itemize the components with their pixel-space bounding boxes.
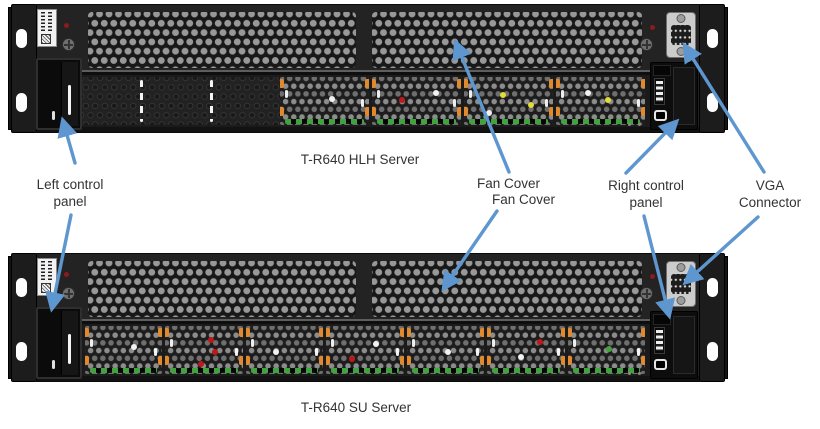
fan-led [605,97,611,103]
fan-release-clip [85,356,89,365]
mounting-hole [16,29,27,48]
bay-separator [210,80,213,122]
callout-fan-cover-su: Fan Cover [492,192,555,208]
fan-release-clip [464,107,468,116]
panel-housing [673,316,695,374]
fan-led [445,349,451,355]
mounting-ear-left [11,4,37,133]
fan-marking [251,339,254,347]
fan-marking [377,90,380,98]
blank-drive-bays [80,77,280,125]
fan-module [464,77,553,125]
fan-led [399,97,405,103]
fan-module [280,77,369,125]
fan-release-clip [641,356,645,365]
server-title-su: T-R640 SU Server [156,400,556,415]
fan-led [273,349,279,355]
vga-connector [666,261,696,307]
usb-port [654,78,665,105]
fan-release-clip [568,356,572,365]
fan-marking [412,339,415,347]
fan-led [329,96,335,102]
fan-led [433,90,439,96]
fan-led [212,349,218,355]
fan-release-clip [407,356,411,365]
fan-release-clip [319,328,323,337]
fan-led [486,110,492,116]
callout-line: Left control [37,177,104,192]
fan-marking [396,348,399,356]
barcode [48,12,52,33]
fan-marking [90,339,93,347]
vga-screw [677,263,686,272]
server-hlh [8,4,728,133]
micro-usb-port [654,359,667,370]
fan-marking [573,339,576,347]
fan-release-clip [326,356,330,365]
fan-module [407,326,484,374]
fan-led [606,346,612,352]
server-title-hlh: T-R640 HLH Server [160,152,560,167]
mounting-hole [16,93,27,112]
indicator-dot [638,372,641,375]
right-control-panel [650,311,698,379]
barcode [41,12,45,33]
fan-release-clip [372,107,376,116]
fan-release-clip [641,107,645,116]
bay-separator [140,80,143,122]
fan-marking [170,339,173,347]
fan-cover-grille [88,261,356,317]
fan-release-clip [326,328,330,337]
fan-release-clip [487,328,491,337]
fan-release-clip [319,356,323,365]
callout-fan-cover-hlh: Fan Cover [477,176,540,192]
fan-release-clip [568,328,572,337]
screw [62,38,75,51]
vga-pins [671,25,691,45]
fan-release-clip [480,356,484,365]
vga-screw [677,296,686,305]
fan-led [528,102,534,108]
fan-release-clip [457,107,461,116]
fan-module [556,77,645,125]
fan-module [326,326,403,374]
fan-release-clip [280,79,284,88]
status-led [650,25,655,30]
fan-module [85,326,162,374]
fan-led [518,354,524,360]
callout-line: Right control [608,178,684,193]
barcode [41,261,45,282]
chassis-base [35,127,699,132]
panel-tab [653,314,671,325]
fan-modules [280,77,645,125]
panel-marking [52,360,55,369]
fan-release-clip [239,356,243,365]
mounting-hole [16,278,27,297]
callout-line: panel [53,194,86,209]
fan-marking [469,90,472,98]
callout-vga-connector: VGA Connector [719,177,820,211]
fan-release-clip [280,107,284,116]
fan-marking [315,348,318,356]
callout-line: VGA [756,178,785,193]
mounting-hole [16,342,27,361]
fan-modules [85,326,645,374]
fan-marking [453,99,456,107]
diagram-canvas: T-R640 HLH Server T-R640 SU Server Left … [0,0,820,429]
fan-marking [235,348,238,356]
callout-right-control-panel: Right control panel [595,177,697,211]
panel-marking [52,111,55,120]
vga-pins [671,274,691,294]
usb-port [654,327,665,354]
mounting-ear-right [699,253,725,382]
fan-module [165,326,242,374]
micro-usb-port [654,110,667,121]
mounting-hole [707,278,718,297]
fan-module [568,326,645,374]
callout-line: panel [629,195,662,210]
fan-module [487,326,564,374]
lower-bay [36,75,698,127]
fan-release-clip [372,79,376,88]
fan-release-clip [165,356,169,365]
fan-marking [361,99,364,107]
fan-release-clip [158,356,162,365]
vga-screw [677,14,686,23]
label-icon [41,283,51,293]
status-led [64,272,69,277]
fan-release-clip [487,356,491,365]
vga-screw [677,47,686,56]
fan-led [208,337,214,343]
label-icon [41,34,51,44]
panel-slot [68,85,71,115]
fan-release-clip [165,328,169,337]
service-tag-label [37,258,57,296]
fan-release-clip [85,328,89,337]
fan-marking [637,99,640,107]
left-control-panel [36,307,82,379]
screw [62,287,75,300]
right-control-panel [650,62,698,130]
fan-release-clip [549,79,553,88]
fan-led [198,361,204,367]
fan-release-clip [457,79,461,88]
callout-left-control-panel: Left control panel [18,176,122,210]
fan-module [246,326,323,374]
fan-marking [492,339,495,347]
fan-release-clip [641,79,645,88]
fan-release-clip [365,79,369,88]
vga-connector [666,12,696,58]
mounting-hole [707,29,718,48]
fan-release-clip [246,328,250,337]
panel-tab [653,65,671,76]
fan-led [537,339,543,345]
fan-release-clip [480,328,484,337]
fan-release-clip [407,328,411,337]
fan-release-clip [561,356,565,365]
callout-line: Connector [739,195,801,210]
indicator-dot [638,123,641,126]
panel-slot [68,334,71,364]
status-led [64,23,69,28]
fan-release-clip [246,356,250,365]
indicator-dot [628,123,631,126]
fan-cover-grille [88,12,356,68]
fan-release-clip [158,328,162,337]
fan-marking [637,348,640,356]
fan-led [500,92,506,98]
fan-marking [285,90,288,98]
service-tag-label [37,9,57,47]
fan-marking [561,90,564,98]
fan-cover-grille [372,12,642,68]
fan-marking [545,99,548,107]
status-led [650,274,655,279]
screw [640,287,653,300]
fan-module [372,77,461,125]
fan-release-clip [400,356,404,365]
mounting-ear-left [11,253,37,382]
fan-led [585,90,591,96]
fan-release-clip [556,79,560,88]
screw [640,38,653,51]
mounting-ear-right [699,4,725,133]
fan-marking [154,348,157,356]
fan-release-clip [365,107,369,116]
fan-led [349,356,355,362]
fan-marking [331,339,334,347]
chassis-base [35,376,699,381]
panel-housing [673,67,695,125]
fan-marking [476,348,479,356]
lower-bay [36,324,698,376]
fan-release-clip [641,328,645,337]
fan-marking [557,348,560,356]
fan-release-clip [464,79,468,88]
fan-release-clip [549,107,553,116]
fan-release-clip [561,328,565,337]
mounting-hole [707,93,718,112]
fan-led [131,344,137,350]
server-su [8,253,728,382]
indicator-dot [628,372,631,375]
fan-release-clip [239,328,243,337]
fan-release-clip [556,107,560,116]
fan-led [373,341,379,347]
left-control-panel [36,58,82,130]
fan-cover-grille [372,261,642,317]
mounting-hole [707,342,718,361]
fan-release-clip [400,328,404,337]
barcode [48,261,52,282]
